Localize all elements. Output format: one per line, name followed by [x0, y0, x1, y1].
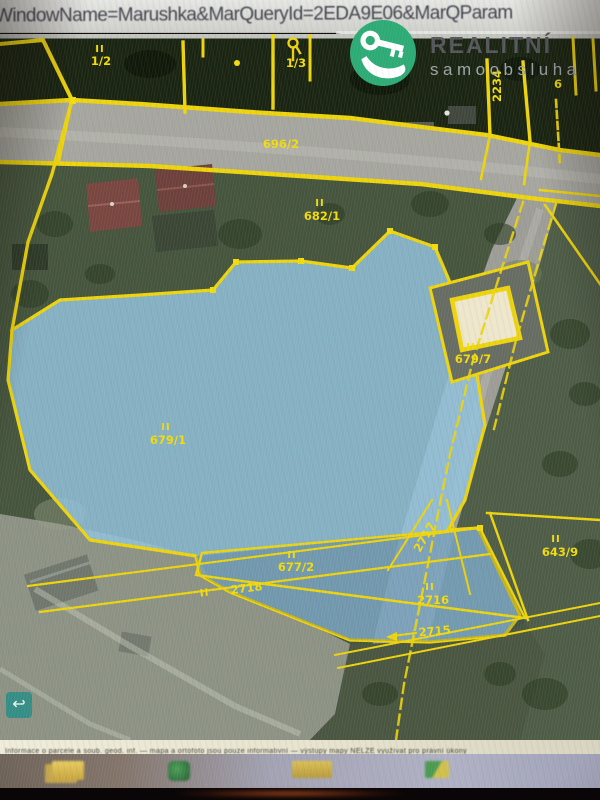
parcel-label-679-1: 679/1 [150, 433, 186, 447]
parcel-label-643-9: 643/9 [542, 545, 578, 559]
taskbar[interactable] [0, 754, 600, 788]
parcel-label-679-7: 679/7 [455, 352, 491, 366]
parcel-marker: II [315, 198, 324, 209]
cadastral-map[interactable]: II 1/2 1/3 2234 6 696/2 II 682/1 II 679/… [0, 34, 600, 740]
parcel-marker: II [551, 534, 560, 545]
parcel-label-2715: 2715 [418, 623, 451, 640]
parcel-label-6: 6 [554, 77, 562, 91]
app-small-icon[interactable] [425, 761, 449, 778]
screen: WindowName=Marushka&MarQueryId=2EDA9E06&… [0, 0, 600, 800]
monitor-bezel [0, 788, 600, 800]
parcel-marker: II [199, 587, 210, 599]
parcel-label-1-2: 1/2 [91, 54, 111, 68]
parcel-marker: II [161, 422, 170, 433]
folders-icon[interactable] [52, 761, 84, 780]
parcel-label-2716: 2716 [417, 593, 449, 607]
parcel-marker: II [425, 582, 434, 593]
address-text: WindowName=Marushka&MarQueryId=2EDA9E06&… [0, 0, 513, 32]
app-green-icon[interactable] [168, 761, 190, 781]
folder-wide-icon[interactable] [292, 761, 332, 778]
previous-view-button[interactable]: ↩ [6, 692, 32, 718]
attribution-text: Informace o parcele a soub. geod. inf. —… [0, 745, 467, 754]
parcel-label-2234: 2234 [490, 70, 504, 102]
parcel-label-677-2: 677/2 [278, 560, 314, 574]
back-arrow-icon: ↩ [12, 696, 25, 713]
parcel-label-1-3: 1/3 [286, 56, 306, 70]
light-reflection [175, 790, 405, 797]
parcel-label-682-1: 682/1 [304, 209, 340, 223]
address-bar[interactable]: WindowName=Marushka&MarQueryId=2EDA9E06&… [0, 0, 600, 33]
attribution-bar: Informace o parcele a soub. geod. inf. —… [0, 740, 600, 754]
parcel-label-696-2: 696/2 [263, 137, 299, 151]
